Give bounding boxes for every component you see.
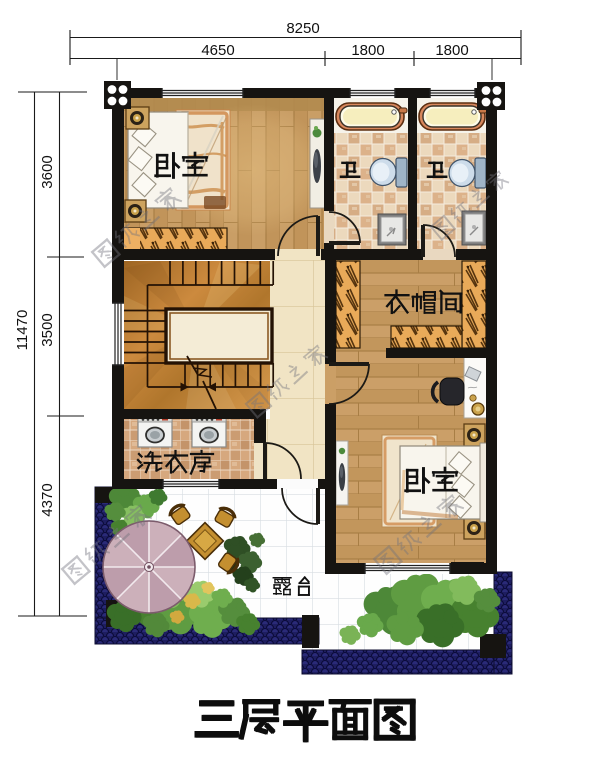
svg-text:4650: 4650 [201, 42, 234, 59]
svg-text:3600: 3600 [39, 155, 56, 188]
svg-text:8250: 8250 [286, 20, 319, 37]
svg-text:1800: 1800 [351, 42, 384, 59]
svg-text:4370: 4370 [39, 483, 56, 516]
svg-text:11470: 11470 [14, 310, 31, 351]
svg-text:3500: 3500 [39, 313, 56, 346]
svg-text:1800: 1800 [435, 42, 468, 59]
